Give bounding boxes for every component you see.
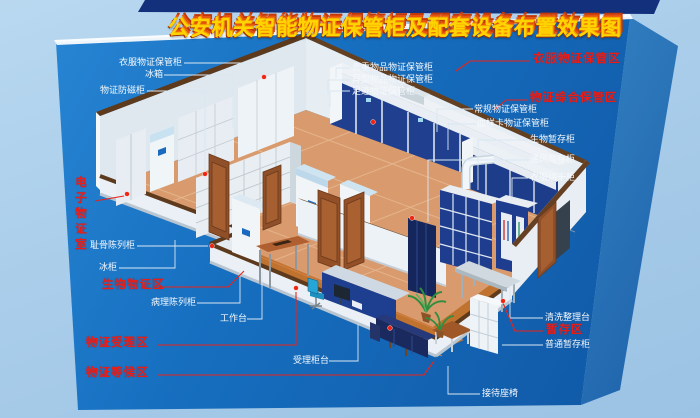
label-pathology: 病理陈列柜 [151, 297, 196, 307]
label-reception-counter: 受理柜台 [293, 355, 329, 365]
label-worktable: 工作台 [220, 313, 247, 323]
label-antimagnetic: 物证防磁柜 [100, 85, 145, 95]
label-freezer: 冰柜 [99, 262, 117, 272]
zone-biological: 生物物证区 [102, 279, 165, 291]
poster-title: 公安机关智能物证保管柜及配套设备布置效果图 [168, 12, 622, 42]
zone-temp-storage: 暂存区 [546, 324, 584, 336]
zone-clothes: 衣服物证保管区 [533, 53, 621, 65]
label-reception-seats: 接待座椅 [482, 388, 518, 398]
layout-poster: 公安机关智能物证保管柜及配套设备布置效果图 衣服物证保管柜 冰箱 物证防磁柜 耻… [0, 0, 700, 418]
label-irregular: 异型物品物证保管柜 [352, 74, 433, 84]
label-ordinary-temp: 普通暂存柜 [545, 339, 590, 349]
label-bio-temp: 生物暂存柜 [530, 134, 575, 144]
label-regular: 常规物证保管柜 [474, 104, 537, 114]
ordinary-temp-locker [470, 294, 506, 354]
zone-electronic-room: 电子物证室 [74, 176, 86, 254]
zone-acceptance: 物证受理区 [86, 337, 149, 349]
label-clothes-dryer: 衣服烘干柜 [530, 172, 575, 182]
label-fridge: 冰箱 [145, 69, 163, 79]
label-cleaning-table: 清洗整理台 [545, 312, 590, 322]
label-valuables: 贵重物品物证保管柜 [352, 62, 433, 72]
label-clothes-cabinet: 衣服物证保管柜 [119, 57, 182, 67]
label-ventilated-temp: 通风暂存柜 [530, 154, 575, 164]
label-pubic-bone: 耻骨陈列柜 [90, 240, 135, 250]
zone-comprehensive: 物证综合保管区 [530, 92, 618, 104]
label-blood-sample: 血样卡物证保管柜 [477, 118, 549, 128]
label-footprint: 足迹物证保管柜 [352, 86, 415, 96]
zone-waiting: 物证等候区 [86, 367, 149, 379]
